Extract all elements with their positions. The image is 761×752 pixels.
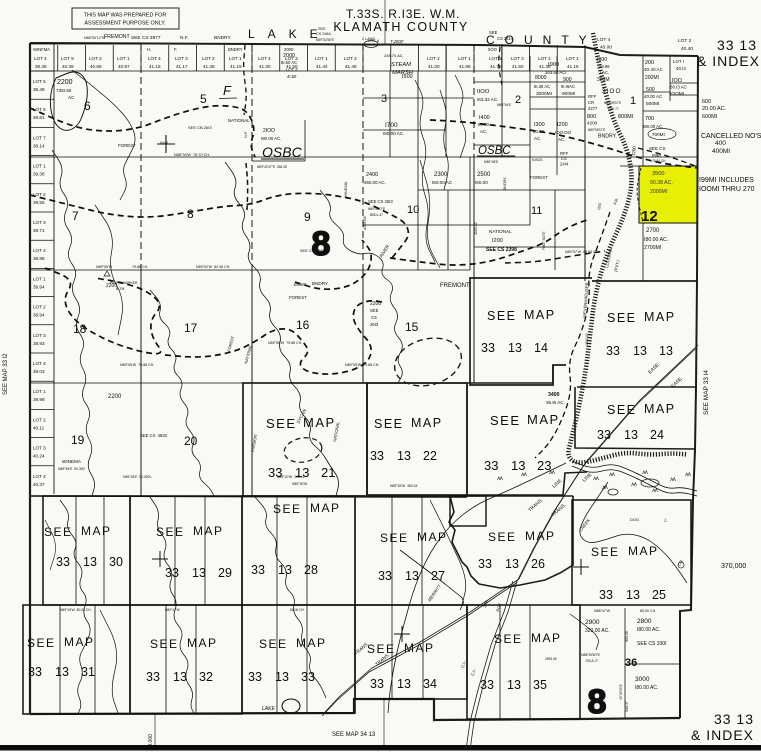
svg-text:738I.60: 738I.60 xyxy=(56,88,72,93)
svg-text:41.19: 41.19 xyxy=(230,64,242,69)
svg-text:CR: CR xyxy=(588,100,594,105)
svg-text:31: 31 xyxy=(81,665,95,679)
svg-text:33: 33 xyxy=(146,670,160,684)
svg-text:AC.: AC. xyxy=(558,137,565,142)
svg-text:LOT 2: LOT 2 xyxy=(538,56,551,61)
svg-text:33: 33 xyxy=(370,449,384,463)
svg-text:33: 33 xyxy=(251,563,265,577)
svg-text:SEE: SEE xyxy=(156,525,185,539)
svg-text:15: 15 xyxy=(405,320,419,334)
svg-text:MAP: MAP xyxy=(303,415,336,430)
svg-text:FREMONT: FREMONT xyxy=(440,283,470,289)
svg-text:MAP: MAP xyxy=(310,501,341,515)
svg-text:MAP: MAP xyxy=(524,308,556,322)
svg-text:5: 5 xyxy=(200,92,207,106)
svg-text:FOREST: FOREST xyxy=(289,295,307,300)
svg-text:40.11: 40.11 xyxy=(33,425,45,430)
svg-text:800: 800 xyxy=(587,114,596,120)
svg-text:AC: AC xyxy=(68,95,75,100)
svg-text:I200: I200 xyxy=(557,122,568,128)
svg-text:2: 2 xyxy=(515,94,521,106)
svg-text:I500: I500 xyxy=(402,74,413,80)
svg-text:80.00 CH.: 80.00 CH. xyxy=(640,609,656,613)
svg-text:N89°52'W 82.08 CH.: N89°52'W 82.08 CH. xyxy=(196,265,230,269)
svg-text:800MI: 800MI xyxy=(618,114,634,120)
svg-text:39.71: 39.71 xyxy=(33,228,45,233)
svg-text:I948.37: I948.37 xyxy=(625,701,629,712)
svg-text:AC.: AC. xyxy=(534,136,541,141)
svg-text:13: 13 xyxy=(278,563,292,577)
svg-text:24I4: 24I4 xyxy=(560,162,569,167)
svg-text:ASSESSMENT PURPOSE ONLY.: ASSESSMENT PURPOSE ONLY. xyxy=(84,21,165,27)
svg-text:MAP: MAP xyxy=(644,310,676,324)
svg-text:LOT I: LOT I xyxy=(673,59,684,64)
svg-text:13: 13 xyxy=(511,458,525,473)
svg-text:LOT 4: LOT 4 xyxy=(33,474,46,479)
svg-text:80.00: 80.00 xyxy=(478,122,490,127)
svg-text:LOT 1: LOT 1 xyxy=(33,164,46,169)
svg-text:N89°52'58"E: N89°52'58"E xyxy=(316,38,334,42)
svg-text:F: F xyxy=(223,83,232,98)
svg-text:60.I3 AC: 60.I3 AC xyxy=(670,85,687,90)
svg-text:2900: 2900 xyxy=(585,619,600,626)
svg-text:F.: F. xyxy=(174,47,177,52)
svg-text:N89°45'W 80.00 CH.: N89°45'W 80.00 CH. xyxy=(60,608,92,612)
svg-text:8I'I40: 8I'I40 xyxy=(160,141,168,145)
svg-text:STEAM: STEAM xyxy=(391,62,411,68)
svg-text:FOREST: FOREST xyxy=(118,143,136,148)
svg-text:2IOO: 2IOO xyxy=(263,128,275,134)
svg-text:266I.77: 266I.77 xyxy=(608,107,619,111)
svg-text:40.97: 40.97 xyxy=(118,64,130,69)
svg-text:2800: 2800 xyxy=(637,618,652,625)
svg-text:N88°34'W 78.70 CH.: N88°34'W 78.70 CH. xyxy=(174,153,210,157)
svg-text:2000: 2000 xyxy=(283,53,295,59)
svg-text:SEE: SEE xyxy=(494,632,523,646)
svg-text:40°49'59"E: 40°49'59"E xyxy=(619,684,623,700)
svg-text:SEE: SEE xyxy=(150,637,179,651)
svg-text:SEE CS: SEE CS xyxy=(649,146,666,151)
svg-text:41.88: 41.88 xyxy=(459,64,471,69)
svg-text:SEE: SEE xyxy=(266,416,297,431)
svg-text:26I3: 26I3 xyxy=(370,322,379,327)
svg-text:DOG: DOG xyxy=(630,517,639,522)
svg-text:41.44: 41.44 xyxy=(316,64,328,69)
svg-text:LOT 4: LOT 4 xyxy=(33,248,46,253)
svg-text:39.98: 39.98 xyxy=(33,397,45,402)
svg-text:40.39: 40.39 xyxy=(62,64,74,69)
svg-text:I AC.: I AC. xyxy=(600,70,609,75)
svg-text:SEE: SEE xyxy=(490,413,521,428)
svg-text:41.16: 41.16 xyxy=(567,64,579,69)
svg-text:8: 8 xyxy=(588,683,607,721)
svg-text:CS: CS xyxy=(371,315,377,320)
svg-text:3400: 3400 xyxy=(548,392,560,398)
svg-text:79.88 CH.: 79.88 CH. xyxy=(132,265,148,269)
svg-text:I300: I300 xyxy=(534,122,545,128)
svg-text:I898: I898 xyxy=(652,153,661,158)
svg-text:40.00: 40.00 xyxy=(600,45,612,51)
svg-text:39.94: 39.94 xyxy=(33,284,45,289)
svg-text:2 LAKE: 2 LAKE xyxy=(361,37,375,41)
svg-text:LOT 5: LOT 5 xyxy=(33,79,46,84)
svg-text:N89°20'W 345.42: N89°20'W 345.42 xyxy=(277,475,305,479)
svg-text:3000: 3000 xyxy=(635,676,650,683)
svg-text:LOT 1: LOT 1 xyxy=(33,389,46,394)
svg-text:LOT 2: LOT 2 xyxy=(89,56,102,61)
svg-text:600: 600 xyxy=(702,99,711,105)
svg-text:3500: 3500 xyxy=(652,171,664,177)
svg-text:8: 8 xyxy=(187,207,194,221)
svg-text:T.33S. R.I3E. W.M.: T.33S. R.I3E. W.M. xyxy=(346,7,460,21)
svg-text:33: 33 xyxy=(28,665,42,679)
svg-text:MAP: MAP xyxy=(531,631,562,645)
svg-text:35: 35 xyxy=(533,678,547,692)
svg-text:LOT 3: LOT 3 xyxy=(489,56,502,61)
svg-text:N89°55'W 79.88 CH.: N89°55'W 79.88 CH. xyxy=(120,363,154,367)
svg-text:N88°47'W: N88°47'W xyxy=(594,609,611,613)
svg-text:11: 11 xyxy=(531,205,542,217)
svg-text:SEE: SEE xyxy=(44,525,73,539)
svg-text:MAP: MAP xyxy=(81,524,112,538)
svg-text:2300: 2300 xyxy=(434,172,448,178)
svg-text:FOOT NOTE: FOOT NOTE xyxy=(542,231,546,250)
svg-text:FREMONT: FREMONT xyxy=(104,34,130,40)
svg-text:26: 26 xyxy=(531,557,545,571)
svg-text:38.14: 38.14 xyxy=(33,143,45,148)
svg-text:N88°50'12"W: N88°50'12"W xyxy=(84,36,106,40)
svg-text:MAP: MAP xyxy=(628,544,659,558)
svg-text:13: 13 xyxy=(507,678,521,692)
svg-text:NATIONAL: NATIONAL xyxy=(228,118,250,123)
svg-text:2000: 2000 xyxy=(284,47,294,52)
svg-text:N89°59'I2"E: N89°59'I2"E xyxy=(604,101,621,105)
svg-text:40.00 AC: 40.00 AC xyxy=(474,221,478,235)
svg-text:36: 36 xyxy=(625,657,637,669)
svg-text:SEE: SEE xyxy=(374,417,404,431)
svg-text:BNDRY.: BNDRY. xyxy=(503,177,507,190)
svg-text:CS: CS xyxy=(561,156,567,161)
svg-text:SEE CS 330I: SEE CS 330I xyxy=(637,641,666,647)
svg-text:20.00 AC.: 20.00 AC. xyxy=(702,106,727,112)
svg-text:38.49: 38.49 xyxy=(33,87,45,92)
svg-text:LOT 3: LOT 3 xyxy=(33,333,46,338)
svg-text:SEE: SEE xyxy=(367,642,396,656)
svg-text:SEE CS 2398: SEE CS 2398 xyxy=(486,247,517,253)
svg-text:2200: 2200 xyxy=(106,283,117,289)
svg-text:BNWY.: BNWY. xyxy=(294,282,307,287)
svg-text:OSBC: OSBC xyxy=(478,145,511,157)
svg-text:28: 28 xyxy=(304,563,318,577)
svg-text:3IOO: 3IOO xyxy=(602,88,622,95)
svg-text:13: 13 xyxy=(626,588,640,602)
svg-text:SOUL.IT: SOUL.IT xyxy=(586,659,598,663)
svg-text:40.40 AC: 40.40 AC xyxy=(644,67,664,72)
svg-text:245.74 AC.: 245.74 AC. xyxy=(384,53,404,58)
svg-text:34: 34 xyxy=(423,677,437,691)
svg-text:40.40: 40.40 xyxy=(681,46,693,52)
svg-text:H.: H. xyxy=(147,47,151,52)
svg-text:41.18: 41.18 xyxy=(149,64,161,69)
svg-text:8000: 8000 xyxy=(535,75,547,81)
svg-text:IOOMI THRU 270: IOOMI THRU 270 xyxy=(699,186,755,193)
svg-text:BNDL.47: BNDL.47 xyxy=(370,213,383,217)
svg-text:32: 32 xyxy=(199,670,213,684)
svg-text:IIOO: IIOO xyxy=(488,47,498,52)
svg-text:KLAMATH COUNTY: KLAMATH COUNTY xyxy=(333,20,468,34)
svg-text:IOO: IOO xyxy=(672,78,683,84)
svg-text:WINEMA: WINEMA xyxy=(343,181,348,198)
svg-text:4I.50: 4I.50 xyxy=(287,74,297,79)
svg-text:41.00: 41.00 xyxy=(428,64,440,69)
svg-text:13: 13 xyxy=(505,557,519,571)
svg-text:2640.00: 2640.00 xyxy=(585,333,589,345)
svg-text:I700: I700 xyxy=(385,122,398,129)
svg-text:7: 7 xyxy=(72,209,79,223)
svg-text:LOT 4: LOT 4 xyxy=(597,37,611,43)
svg-text:FOREST: FOREST xyxy=(530,175,548,180)
svg-text:33: 33 xyxy=(606,344,620,358)
svg-text:I80.00 AC.: I80.00 AC. xyxy=(383,131,404,136)
svg-text:SEE CS 2388: SEE CS 2388 xyxy=(300,249,324,253)
svg-text:3: 3 xyxy=(381,93,387,105)
svg-text:SEE: SEE xyxy=(487,309,517,323)
svg-text:SEE: SEE xyxy=(370,308,379,313)
svg-text:CS 2464: CS 2464 xyxy=(316,32,331,36)
svg-text:AC.: AC. xyxy=(480,129,487,134)
svg-text:2277: 2277 xyxy=(588,106,598,111)
svg-text:38.93: 38.93 xyxy=(33,341,45,346)
svg-text:700MI: 700MI xyxy=(652,132,665,137)
svg-text:2200: 2200 xyxy=(108,394,122,400)
svg-text:33 13: 33 13 xyxy=(717,37,757,53)
svg-text:LOT 4: LOT 4 xyxy=(148,56,161,61)
svg-text:9I.I6AC: 9I.I6AC xyxy=(561,84,575,89)
svg-text:29: 29 xyxy=(218,566,232,580)
svg-text:LOT 1: LOT 1 xyxy=(229,56,242,61)
svg-text:13: 13 xyxy=(397,677,411,691)
svg-text:MAP: MAP xyxy=(411,416,443,430)
svg-text:2700MI: 2700MI xyxy=(644,245,661,251)
svg-text:38.94: 38.94 xyxy=(33,313,45,318)
svg-text:BNDRY.: BNDRY. xyxy=(598,134,617,140)
svg-text:700: 700 xyxy=(645,116,654,122)
svg-text:500MI: 500MI xyxy=(646,101,659,107)
svg-text:20: 20 xyxy=(184,434,198,448)
svg-text:I80.00 AC.: I80.00 AC. xyxy=(635,685,658,691)
svg-text:13: 13 xyxy=(397,449,411,463)
svg-text:370,000: 370,000 xyxy=(721,563,746,570)
svg-text:LOT 3: LOT 3 xyxy=(286,67,298,72)
svg-text:BNDRY: BNDRY xyxy=(228,47,243,52)
svg-text:MAP: MAP xyxy=(527,412,560,427)
svg-text:40.I3: 40.I3 xyxy=(676,66,686,71)
svg-text:MAP: MAP xyxy=(64,635,95,649)
svg-text:I99MI INCLUDES: I99MI INCLUDES xyxy=(699,177,754,184)
svg-text:2200: 2200 xyxy=(370,301,381,307)
svg-text:IIOO: IIOO xyxy=(477,89,490,95)
svg-text:41.50: 41.50 xyxy=(512,64,524,69)
svg-text:LOT 1: LOT 1 xyxy=(566,56,579,61)
svg-text:SEE MAP 33 I4: SEE MAP 33 I4 xyxy=(703,370,710,415)
svg-text:SEE MAP 34 13: SEE MAP 34 13 xyxy=(332,732,376,738)
svg-text:I80.00 AC.: I80.00 AC. xyxy=(637,627,660,633)
svg-text:LOT 1: LOT 1 xyxy=(315,56,328,61)
svg-text:MAP: MAP xyxy=(187,636,218,650)
svg-text:41.17: 41.17 xyxy=(176,64,188,69)
svg-text:BNDRY.: BNDRY. xyxy=(312,281,329,286)
svg-text:IOO.OO: IOO.OO xyxy=(555,130,572,135)
svg-text:& INDEX: & INDEX xyxy=(691,727,754,743)
svg-text:25: 25 xyxy=(652,588,666,602)
svg-text:98.99: 98.99 xyxy=(599,64,610,69)
svg-text:2595.06: 2595.06 xyxy=(545,657,557,661)
svg-text:13: 13 xyxy=(624,428,638,442)
svg-text:SEE: SEE xyxy=(273,502,302,516)
svg-text:500: 500 xyxy=(646,87,655,93)
svg-text:N.BCK.: N.BCK. xyxy=(532,158,543,162)
svg-text:I200: I200 xyxy=(631,145,637,155)
svg-text:MAP: MAP xyxy=(296,636,327,650)
svg-text:41.38: 41.38 xyxy=(203,64,215,69)
svg-text:33: 33 xyxy=(599,588,613,602)
svg-text:33: 33 xyxy=(370,677,384,691)
svg-text:40.68: 40.68 xyxy=(90,64,102,69)
svg-text:6I.36 AC: 6I.36 AC xyxy=(534,84,550,89)
svg-text:N89°54'E 90.300': N89°54'E 90.300' xyxy=(58,467,86,471)
svg-text:14: 14 xyxy=(534,341,548,355)
svg-text:LOT 7: LOT 7 xyxy=(33,135,46,140)
svg-text:300M: 300M xyxy=(597,77,610,83)
svg-text:MAP: MAP xyxy=(193,524,224,538)
svg-text:33: 33 xyxy=(248,670,262,684)
svg-text:360.00 AC.: 360.00 AC. xyxy=(364,180,386,185)
svg-text:I400: I400 xyxy=(479,115,490,121)
svg-text:I60.00 AC: I60.00 AC xyxy=(432,180,453,185)
svg-text:N89°42'47"E 266.38: N89°42'47"E 266.38 xyxy=(257,165,287,169)
svg-text:13: 13 xyxy=(192,566,206,580)
svg-text:2000MI: 2000MI xyxy=(650,189,667,195)
svg-text:LOT 4: LOT 4 xyxy=(33,361,46,366)
svg-text:SEE: SEE xyxy=(591,545,620,559)
svg-text:SEE: SEE xyxy=(27,636,56,650)
svg-text:33: 33 xyxy=(481,341,495,355)
svg-text:N.F.: N.F. xyxy=(180,35,189,41)
svg-text:400MI: 400MI xyxy=(712,148,730,155)
svg-text:B-TM: B-TM xyxy=(116,287,124,291)
svg-text:RFF: RFF xyxy=(588,94,597,99)
svg-text:41.48: 41.48 xyxy=(345,64,357,69)
svg-text:17: 17 xyxy=(184,321,198,335)
svg-text:27: 27 xyxy=(431,569,445,583)
svg-text:LOT 3: LOT 3 xyxy=(33,220,46,225)
svg-text:13: 13 xyxy=(508,341,522,355)
svg-text:13: 13 xyxy=(275,670,289,684)
svg-text:LOT 3: LOT 3 xyxy=(33,446,46,451)
svg-text:LOT 2: LOT 2 xyxy=(678,38,692,44)
svg-text:I900: I900 xyxy=(548,62,559,68)
svg-text:LOT 2: LOT 2 xyxy=(33,305,46,310)
svg-text:T-2000': T-2000' xyxy=(390,39,404,44)
svg-text:& INDEX: & INDEX xyxy=(697,53,760,69)
svg-text:NATIONAL: NATIONAL xyxy=(489,229,512,234)
svg-text:LOT 2: LOT 2 xyxy=(33,417,46,422)
svg-text:SEE: SEE xyxy=(318,27,326,31)
svg-text:LOT 1: LOT 1 xyxy=(33,276,46,281)
svg-text:41.76: 41.76 xyxy=(490,64,502,69)
svg-text:I80.00 AC.: I80.00 AC. xyxy=(644,237,668,243)
svg-text:SEE CS 3977: SEE CS 3977 xyxy=(131,35,161,41)
svg-text:MAP: MAP xyxy=(417,530,448,544)
svg-text:WINEMA: WINEMA xyxy=(62,459,82,464)
svg-text:LOT 4: LOT 4 xyxy=(258,56,271,61)
svg-text:400: 400 xyxy=(715,140,726,147)
svg-text:39.55: 39.55 xyxy=(33,200,45,205)
svg-text:2200: 2200 xyxy=(57,79,73,86)
svg-text:13: 13 xyxy=(55,665,69,679)
svg-text:22: 22 xyxy=(423,449,437,463)
svg-text:38.81: 38.81 xyxy=(33,115,45,120)
svg-text:21: 21 xyxy=(321,465,335,480)
svg-text:80.00: 80.00 xyxy=(533,129,545,134)
svg-text:SEE: SEE xyxy=(489,30,498,35)
svg-text:CS 2414: CS 2414 xyxy=(497,36,514,41)
svg-text:N89°55'W: N89°55'W xyxy=(96,265,113,269)
svg-text:320.00 AC.: 320.00 AC. xyxy=(585,628,610,634)
svg-text:LOT 2: LOT 2 xyxy=(427,56,440,61)
svg-text:90.38 AC.: 90.38 AC. xyxy=(650,180,673,186)
svg-text:LOT 1: LOT 1 xyxy=(458,56,471,61)
svg-text:N89°30'W: N89°30'W xyxy=(292,482,308,486)
svg-text:80.00 CH.: 80.00 CH. xyxy=(290,608,305,612)
svg-text:LOT 3: LOT 3 xyxy=(511,56,524,61)
svg-text:1: 1 xyxy=(630,95,636,107)
svg-text:N89°55'W 79.88 CH.: N89°55'W 79.88 CH. xyxy=(268,341,302,345)
svg-text:600MI: 600MI xyxy=(702,114,718,120)
svg-text:900: 900 xyxy=(563,77,572,83)
svg-text:N89°54'E: N89°54'E xyxy=(497,103,512,107)
svg-text:THIS MAP WAS PREPARED FOR: THIS MAP WAS PREPARED FOR xyxy=(84,13,167,19)
svg-text:WINFMA: WINFMA xyxy=(33,47,50,52)
svg-text:N89°59'I2"E: N89°59'I2"E xyxy=(588,128,605,132)
svg-text:I63.32 AC.: I63.32 AC. xyxy=(477,97,498,102)
svg-text:SEE: SEE xyxy=(488,530,517,544)
svg-text:303.60 AO.: 303.60 AO. xyxy=(545,70,567,75)
svg-text:33: 33 xyxy=(597,428,611,442)
svg-text:N89°59'I2"E: N89°59'I2"E xyxy=(368,207,385,211)
svg-text:SEE CS 26I3: SEE CS 26I3 xyxy=(368,199,393,204)
svg-text:LOT 1: LOT 1 xyxy=(117,56,130,61)
svg-text:2500: 2500 xyxy=(477,172,491,178)
svg-text:13: 13 xyxy=(173,670,187,684)
svg-text:LOT 2: LOT 2 xyxy=(202,56,215,61)
svg-text:6I.50 AC: 6I.50 AC xyxy=(281,60,297,65)
svg-text:I60.00: I60.00 xyxy=(475,180,488,185)
svg-text:SEE: SEE xyxy=(380,531,409,545)
svg-text:N88°5I'50"E: N88°5I'50"E xyxy=(581,653,601,657)
svg-text:CANCELLED NO'S: CANCELLED NO'S xyxy=(701,133,761,140)
svg-text:N89°57'W 88.88 CH.: N89°57'W 88.88 CH. xyxy=(565,250,599,254)
svg-text:41.30: 41.30 xyxy=(259,64,271,69)
svg-text:I80.00 AC.: I80.00 AC. xyxy=(261,136,282,141)
svg-text:13: 13 xyxy=(83,555,97,569)
svg-text:33 13: 33 13 xyxy=(714,711,754,727)
svg-text:N89°47'W: N89°47'W xyxy=(165,608,181,612)
svg-text:SEE: SEE xyxy=(607,311,637,325)
svg-text:3000MI: 3000MI xyxy=(536,91,552,97)
svg-text:38.38: 38.38 xyxy=(35,64,47,69)
svg-text:40.00 AC: 40.00 AC xyxy=(644,94,662,99)
